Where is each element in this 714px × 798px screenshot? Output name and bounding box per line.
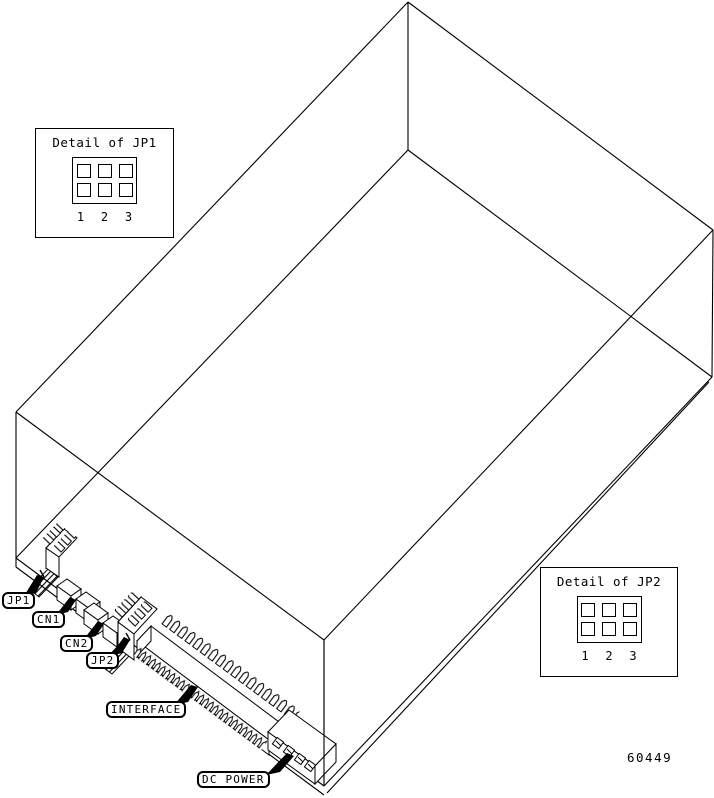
detail-box-jp2: Detail of JP2 1 2 3 — [540, 567, 678, 677]
callout-label-jp2: JP2 — [86, 652, 119, 669]
drive-connector-diagram: Detail of JP1 1 2 3 Detail of JP2 1 2 — [0, 0, 714, 798]
pin-number: 1 — [573, 649, 597, 663]
callout-label-cn2: CN2 — [60, 635, 93, 652]
pin-cell — [119, 164, 133, 178]
pin-number-row: 1 2 3 — [69, 210, 141, 224]
pin-cell — [581, 622, 595, 636]
callout-label-interface: INTERFACE — [106, 701, 186, 718]
pin-number: 2 — [93, 210, 117, 224]
pin-number-row: 1 2 3 — [573, 649, 645, 663]
callout-label-dc-power: DC POWER — [197, 771, 270, 788]
pin-cell — [119, 183, 133, 197]
pin-cell — [602, 622, 616, 636]
pin-cell — [623, 622, 637, 636]
pin-number: 2 — [597, 649, 621, 663]
pin-cell — [77, 183, 91, 197]
detail-box-jp1-title: Detail of JP1 — [36, 135, 173, 150]
pin-cell — [581, 603, 595, 617]
detail-box-jp1: Detail of JP1 1 2 3 — [35, 128, 174, 238]
dc-power-connector — [268, 710, 336, 784]
pin-cell — [77, 164, 91, 178]
jumper-pin-grid — [577, 596, 642, 643]
callout-label-cn1: CN1 — [32, 611, 65, 628]
pin-cell — [623, 603, 637, 617]
jumper-pin-grid — [72, 157, 137, 204]
pin-number: 1 — [69, 210, 93, 224]
diagram-line-art — [0, 0, 714, 798]
callout-pointers — [24, 575, 294, 775]
figure-number: 60449 — [627, 750, 672, 765]
pin-number: 3 — [117, 210, 141, 224]
callout-label-jp1: JP1 — [2, 592, 35, 609]
detail-box-jp2-title: Detail of JP2 — [541, 574, 677, 589]
pin-cell — [98, 183, 112, 197]
pin-cell — [602, 603, 616, 617]
pin-cell — [98, 164, 112, 178]
pin-number: 3 — [621, 649, 645, 663]
